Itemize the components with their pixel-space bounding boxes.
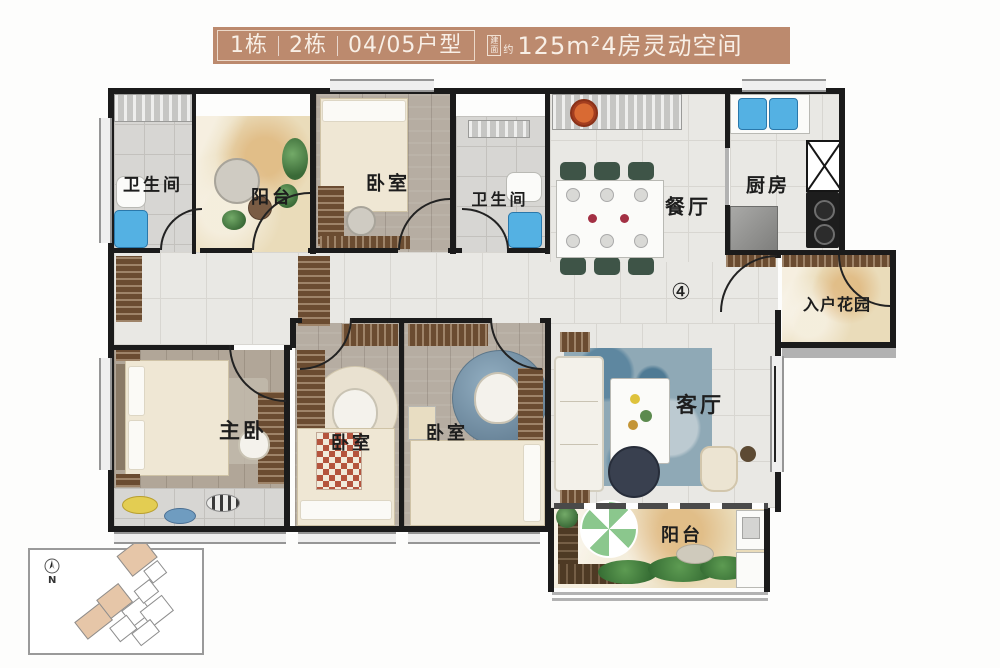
fish-icon — [122, 496, 158, 514]
sofa-cushion-line — [560, 444, 598, 445]
kitchen-island — [730, 206, 778, 252]
wall-segment — [108, 345, 234, 350]
desk-chair — [346, 206, 376, 236]
side-table — [560, 332, 590, 352]
wardrobe — [298, 256, 330, 326]
divider — [337, 36, 338, 56]
pizza-icon — [570, 99, 598, 127]
room-label-bathroom2: 卫生间 — [471, 186, 528, 210]
building-unit-box: 1栋 2栋 04/05户型 — [217, 30, 475, 61]
bed-headboard — [116, 364, 125, 470]
fridge — [806, 140, 843, 192]
window — [742, 79, 826, 92]
room-label-bedroom-mid: 卧室 — [426, 419, 468, 445]
divider — [278, 36, 279, 56]
north-label: N — [48, 575, 56, 586]
laundry-unit — [736, 552, 766, 588]
area-stamp-char2: 面 — [490, 46, 498, 55]
dining-chair — [628, 257, 654, 275]
building-1-label: 1栋 — [230, 35, 268, 57]
room-label-bedroom-top: 卧室 — [366, 169, 410, 196]
window — [298, 532, 396, 544]
unit-number-marker: ④ — [668, 279, 694, 305]
building-2-label: 2栋 — [289, 35, 327, 57]
room-label-master: 主卧 — [219, 415, 267, 445]
bath-shelf — [468, 120, 530, 138]
stones — [676, 544, 714, 564]
side-table-round — [740, 446, 756, 462]
slider-track — [554, 503, 768, 509]
kitchen-sink — [769, 98, 798, 130]
wall-segment — [764, 508, 770, 592]
dining-chair — [594, 257, 620, 275]
floorplan-page: 1栋 2栋 04/05户型 建 面 约 125m²4房灵动空间 — [0, 0, 1000, 668]
window — [99, 118, 112, 243]
window — [330, 79, 434, 92]
wall-segment — [775, 472, 781, 512]
wall-segment — [290, 318, 296, 348]
wardrobe — [116, 256, 142, 322]
wardrobe — [408, 324, 488, 346]
wall-segment — [308, 248, 398, 253]
flower-decor — [620, 214, 629, 223]
room-label-dining: 餐厅 — [665, 191, 711, 220]
accent-chair — [700, 446, 738, 492]
window-leaf — [774, 366, 776, 462]
sofa — [554, 356, 604, 492]
compass-icon — [44, 558, 60, 574]
pillow — [322, 100, 406, 122]
area-headline: 125m²4房灵动空间 — [517, 34, 742, 58]
place-setting — [566, 234, 580, 248]
dining-chair — [560, 162, 586, 180]
room-label-kitchen: 厨房 — [746, 171, 790, 198]
outer-ledge — [782, 348, 896, 358]
washer — [114, 94, 194, 122]
flower-decor — [588, 214, 597, 223]
fridge-x-mark — [808, 142, 841, 190]
burner — [814, 224, 835, 245]
plant-icon — [282, 138, 308, 180]
armchair — [474, 372, 522, 424]
area-stamp-box: 建 面 — [487, 35, 501, 57]
wall-segment — [725, 88, 730, 148]
dining-chair — [594, 162, 620, 180]
window — [770, 356, 784, 472]
building-cluster — [50, 527, 202, 668]
wall-segment — [545, 88, 550, 254]
place-setting — [634, 188, 648, 202]
room-label-bathroom1: 卫生间 — [123, 171, 183, 196]
fish-icon — [164, 508, 196, 524]
burner — [814, 200, 835, 221]
sink-basin — [742, 517, 760, 539]
window — [99, 358, 112, 470]
room-label-living: 客厅 — [676, 389, 724, 419]
shower — [114, 210, 148, 248]
wall-segment — [108, 248, 160, 253]
nightstand — [116, 474, 140, 487]
room-label-balcony-bottom: 阳台 — [661, 521, 703, 547]
outer-ledge — [552, 592, 768, 595]
wall-segment — [399, 318, 404, 526]
window — [408, 532, 540, 544]
wall-segment — [507, 248, 550, 253]
window — [114, 532, 286, 544]
area-stamp-approx: 约 — [503, 41, 513, 56]
dining-chair — [628, 162, 654, 180]
place-setting — [634, 234, 648, 248]
sofa-cushion-line — [560, 401, 598, 402]
wall-segment — [775, 310, 781, 346]
table-decor — [628, 420, 638, 430]
wall-segment — [725, 205, 730, 255]
pillow — [128, 420, 145, 470]
place-setting — [566, 188, 580, 202]
place-setting — [600, 234, 614, 248]
pillow — [300, 500, 392, 520]
room-label-bedroom-left: 卧室 — [331, 429, 373, 455]
plant-icon — [556, 506, 578, 528]
title-banner: 1栋 2栋 04/05户型 建 面 约 125m²4房灵动空间 — [213, 27, 790, 64]
site-plan-inset: N — [28, 548, 204, 655]
unit-type-label: 04/05户型 — [348, 35, 462, 57]
wall-segment — [350, 318, 492, 323]
wall-segment — [545, 318, 551, 526]
area-stamp: 建 面 约 — [487, 35, 513, 57]
fish-icon — [206, 494, 240, 512]
wall-segment — [108, 88, 845, 94]
stove — [806, 192, 839, 248]
place-setting — [600, 188, 614, 202]
wall-segment — [450, 88, 456, 254]
wall-segment — [775, 342, 896, 348]
sliding-door-track — [725, 148, 729, 205]
room-label-entry-garden: 入户花园 — [803, 291, 871, 315]
area-info: 建 面 约 125m²4房灵动空间 — [487, 34, 742, 58]
wall-segment — [448, 248, 462, 253]
kitchen-sink — [738, 98, 767, 130]
wall-segment — [839, 88, 845, 255]
wall-segment — [890, 250, 896, 348]
armchair-dark — [608, 446, 660, 498]
dining-chair — [560, 257, 586, 275]
balcony-sink — [736, 510, 766, 550]
table-decor — [630, 394, 640, 404]
desk — [518, 368, 543, 446]
wall-segment — [200, 248, 252, 253]
plant-icon — [222, 210, 246, 230]
table-decor — [640, 410, 652, 422]
room-label-balcony-top: 阳台 — [251, 183, 293, 209]
wall-segment — [310, 88, 316, 254]
shower — [508, 212, 542, 248]
outer-ledge — [552, 598, 768, 601]
pillow — [523, 444, 541, 522]
pillow — [128, 366, 145, 416]
